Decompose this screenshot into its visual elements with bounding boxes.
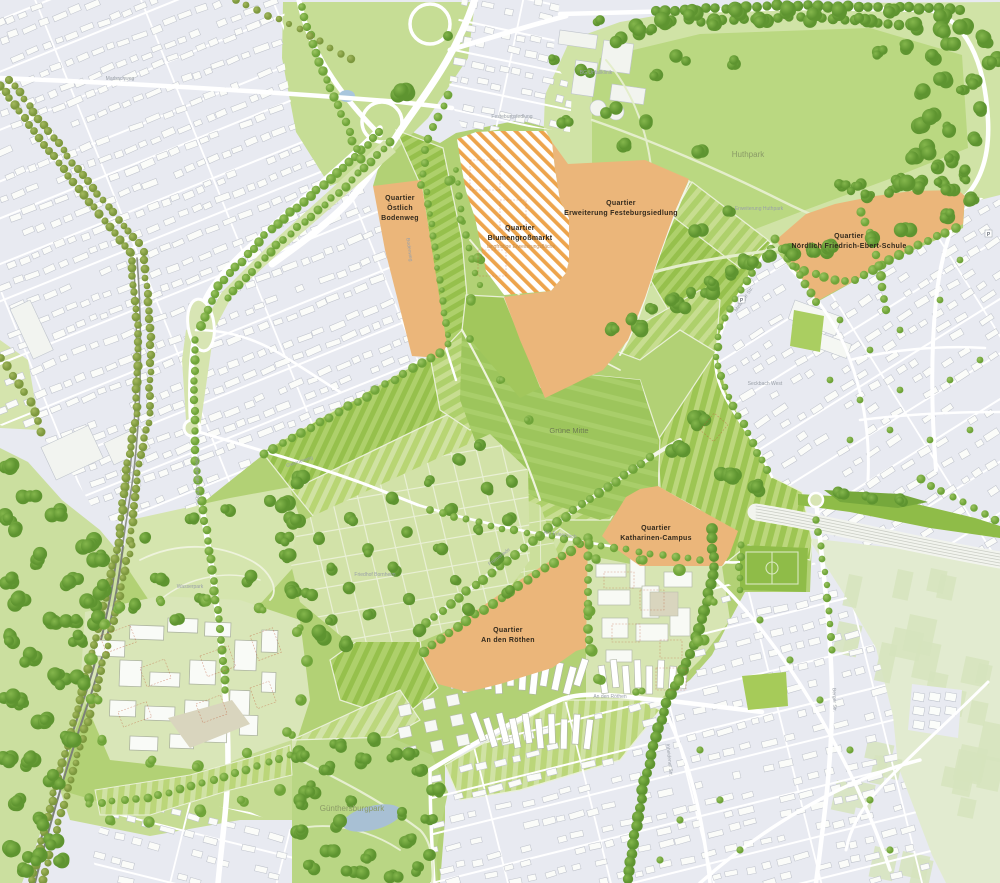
svg-text:Günthersburgpark: Günthersburgpark <box>320 804 385 813</box>
svg-text:Friedhof Bornheim: Friedhof Bornheim <box>354 572 395 578</box>
svg-text:Grüne Mitte: Grüne Mitte <box>549 426 588 435</box>
svg-text:Berger Str.: Berger Str. <box>831 688 838 712</box>
svg-text:BG Unfallklinik: BG Unfallklinik <box>580 70 613 76</box>
svg-text:Seckbach West: Seckbach West <box>748 381 783 387</box>
svg-text:Wasserpark: Wasserpark <box>177 584 204 590</box>
svg-text:langfristige Erweiterungsfläch: langfristige Erweiterungsfläche <box>487 244 555 250</box>
svg-text:Huthpark: Huthpark <box>732 150 765 159</box>
svg-text:Festeburgsiedlung: Festeburgsiedlung <box>491 114 532 120</box>
svg-text:Erweiterung Huthpark: Erweiterung Huthpark <box>735 206 784 212</box>
svg-text:Marbachweg: Marbachweg <box>106 76 135 82</box>
svg-text:An den Röthen: An den Röthen <box>593 694 627 700</box>
